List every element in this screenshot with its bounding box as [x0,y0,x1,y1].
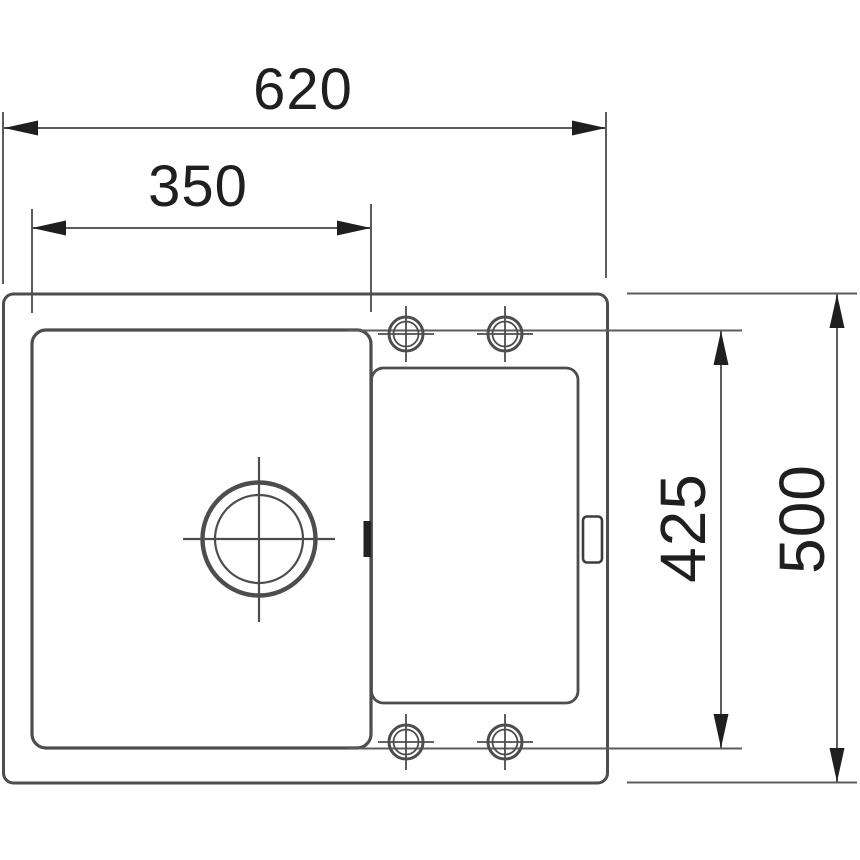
tap-hole-bottom-right [477,714,533,770]
drain-hole [183,457,335,622]
arrow-down-icon [714,714,729,748]
drainboard-outline [372,368,579,703]
dim-label-bowl-width: 350 [148,158,248,216]
dim-overall-width [3,112,606,284]
arrow-left-icon [32,221,66,236]
dim-bowl-width [32,204,371,313]
arrow-up-icon [714,331,729,365]
dim-label-overall-width: 620 [253,61,353,119]
arrow-right-icon [337,221,371,236]
arrow-down-icon [830,748,845,782]
dim-label-overall-depth: 500 [770,464,834,574]
dim-label-bowl-depth: 425 [651,473,715,583]
tap-hole-bottom-left [378,714,434,770]
tap-hole-top-right [477,306,533,362]
tap-hole-top-left [378,306,434,362]
drawing-canvas [0,0,860,860]
arrow-left-icon [4,121,38,136]
arrow-right-icon [572,121,606,136]
overflow-slot [583,517,602,563]
bowl-overflow-mark [364,521,372,557]
arrow-up-icon [830,294,845,328]
sink-technical-drawing: 620 350 425 500 [0,0,860,860]
